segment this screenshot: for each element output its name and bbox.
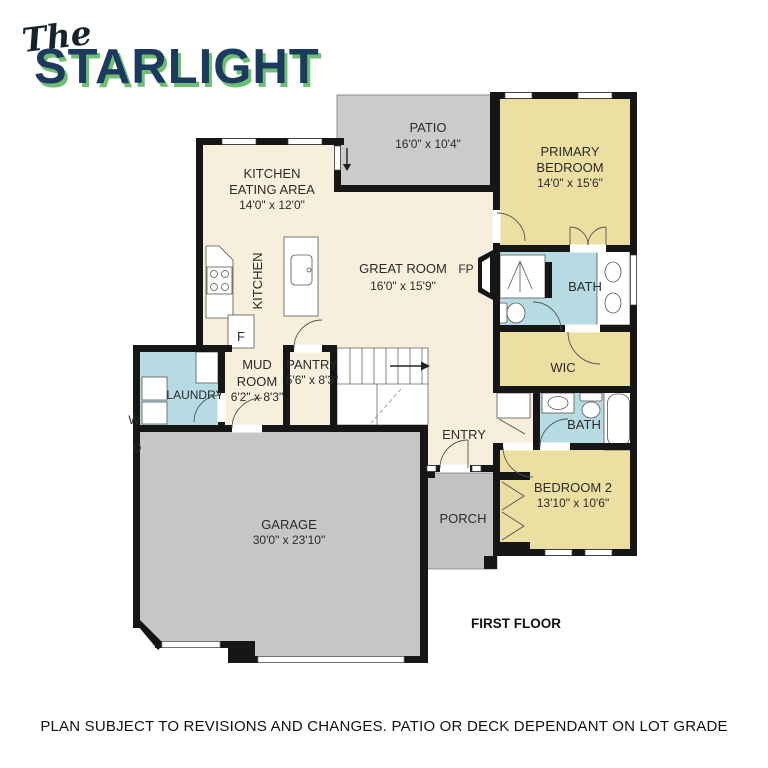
- fireplace-opening: [482, 257, 490, 293]
- shower: [500, 255, 545, 298]
- staircase: [337, 348, 428, 425]
- porch-label: PORCH: [440, 511, 487, 526]
- great-room-dims: 16'0" x 15'9": [370, 279, 436, 293]
- bedroom2-dims: 13'10" x 10'6": [537, 496, 610, 510]
- window: [545, 550, 572, 556]
- mud-room-dims: 6'2" x 8'3": [231, 390, 283, 404]
- patio-dims: 16'0" x 10'4": [395, 137, 461, 151]
- window: [578, 93, 612, 99]
- front-door-opening: [440, 465, 470, 473]
- garage-label: GARAGE: [261, 517, 317, 532]
- dryer-icon: [142, 402, 167, 424]
- wic-label: WIC: [550, 360, 575, 375]
- floor-label: FIRST FLOOR: [471, 616, 561, 631]
- patio-label: PATIO: [409, 120, 446, 135]
- wic-door-opening: [565, 325, 600, 333]
- great-room-label: GREAT ROOM: [359, 261, 447, 276]
- kitchen-label: KITCHEN: [250, 252, 265, 309]
- wall-bath-stub: [545, 262, 552, 298]
- garage-dims: 30'0" x 23'10": [253, 533, 326, 547]
- wall-left: [133, 345, 140, 628]
- window: [631, 255, 637, 305]
- primary-door-opening: [493, 210, 501, 243]
- floor-plan-drawing: PATIO 16'0" x 10'4" PRIMARY BEDROOM 14'0…: [0, 0, 768, 768]
- window: [288, 139, 322, 145]
- laundry-label: LAUNDRY: [166, 388, 223, 402]
- washer-label: W: [128, 413, 140, 427]
- pantry-label: PANTRY: [286, 357, 338, 372]
- disclaimer-text: PLAN SUBJECT TO REVISIONS AND CHANGES. P…: [0, 718, 768, 735]
- pantry-door-opening: [294, 345, 322, 353]
- toilet-icon: [507, 303, 525, 323]
- window: [585, 550, 612, 556]
- primary-bath-label: BATH: [568, 279, 602, 294]
- kitchen-eating-label-2: EATING AREA: [229, 182, 315, 197]
- room-wic: [497, 332, 630, 386]
- primary-vanity: [597, 250, 630, 325]
- hall-closet: [497, 393, 530, 418]
- kitchen-island: [284, 237, 318, 316]
- toilet-tank: [580, 393, 602, 401]
- primary-bedroom-label-2: BEDROOM: [536, 160, 603, 175]
- patio-door-opening: [335, 146, 341, 170]
- mud-room-label-2: ROOM: [237, 374, 277, 389]
- pantry-dims: 5'6" x 8'3": [286, 373, 338, 387]
- garage-door-opening: [258, 657, 404, 663]
- double-door-opening: [570, 245, 606, 253]
- wall-wic-bottom: [493, 386, 637, 393]
- window: [222, 139, 256, 145]
- entry-label: ENTRY: [442, 427, 486, 442]
- bedroom2-label: BEDROOM 2: [534, 480, 612, 495]
- wall-garage-right: [420, 425, 428, 663]
- window: [505, 93, 532, 99]
- kitchen-eating-label-1: KITCHEN: [243, 166, 300, 181]
- floor-plan-page: The STARLIGHT: [0, 0, 768, 768]
- plan-title: The STARLIGHT: [20, 20, 320, 92]
- toilet-icon: [582, 402, 600, 418]
- primary-bedroom-label-1: PRIMARY: [541, 144, 600, 159]
- bath2-label: BATH: [567, 417, 601, 432]
- plan-title-script: The: [20, 16, 93, 57]
- mud-door-opening: [232, 425, 262, 433]
- wall-suite-west: [493, 95, 500, 393]
- wall-primary-bedroom-bottom: [493, 245, 637, 252]
- bedroom2-door-opening: [503, 443, 533, 451]
- stove-icon: [207, 267, 232, 294]
- toilet-tank: [499, 303, 507, 323]
- bath2-vanity: [542, 393, 574, 413]
- porch-post: [484, 556, 497, 569]
- fridge-label: F: [237, 329, 245, 344]
- washer-icon: [142, 377, 167, 400]
- wall-garage-top: [133, 425, 428, 432]
- mud-room-label-1: MUD: [242, 357, 272, 372]
- bath2-door-opening: [540, 443, 570, 451]
- primary-bedroom-dims: 14'0" x 15'6": [537, 176, 603, 190]
- wall-right: [630, 92, 637, 556]
- fireplace-label: FP: [458, 262, 473, 276]
- garage-door-opening: [162, 642, 220, 648]
- kitchen-eating-dims: 14'0" x 12'0": [239, 198, 305, 212]
- wall-kitchen-left: [196, 138, 203, 352]
- laundry-counter: [196, 352, 218, 383]
- dryer-label: D: [133, 441, 142, 455]
- wall-patio-bottom: [337, 185, 497, 192]
- window: [427, 466, 436, 472]
- window: [472, 466, 481, 472]
